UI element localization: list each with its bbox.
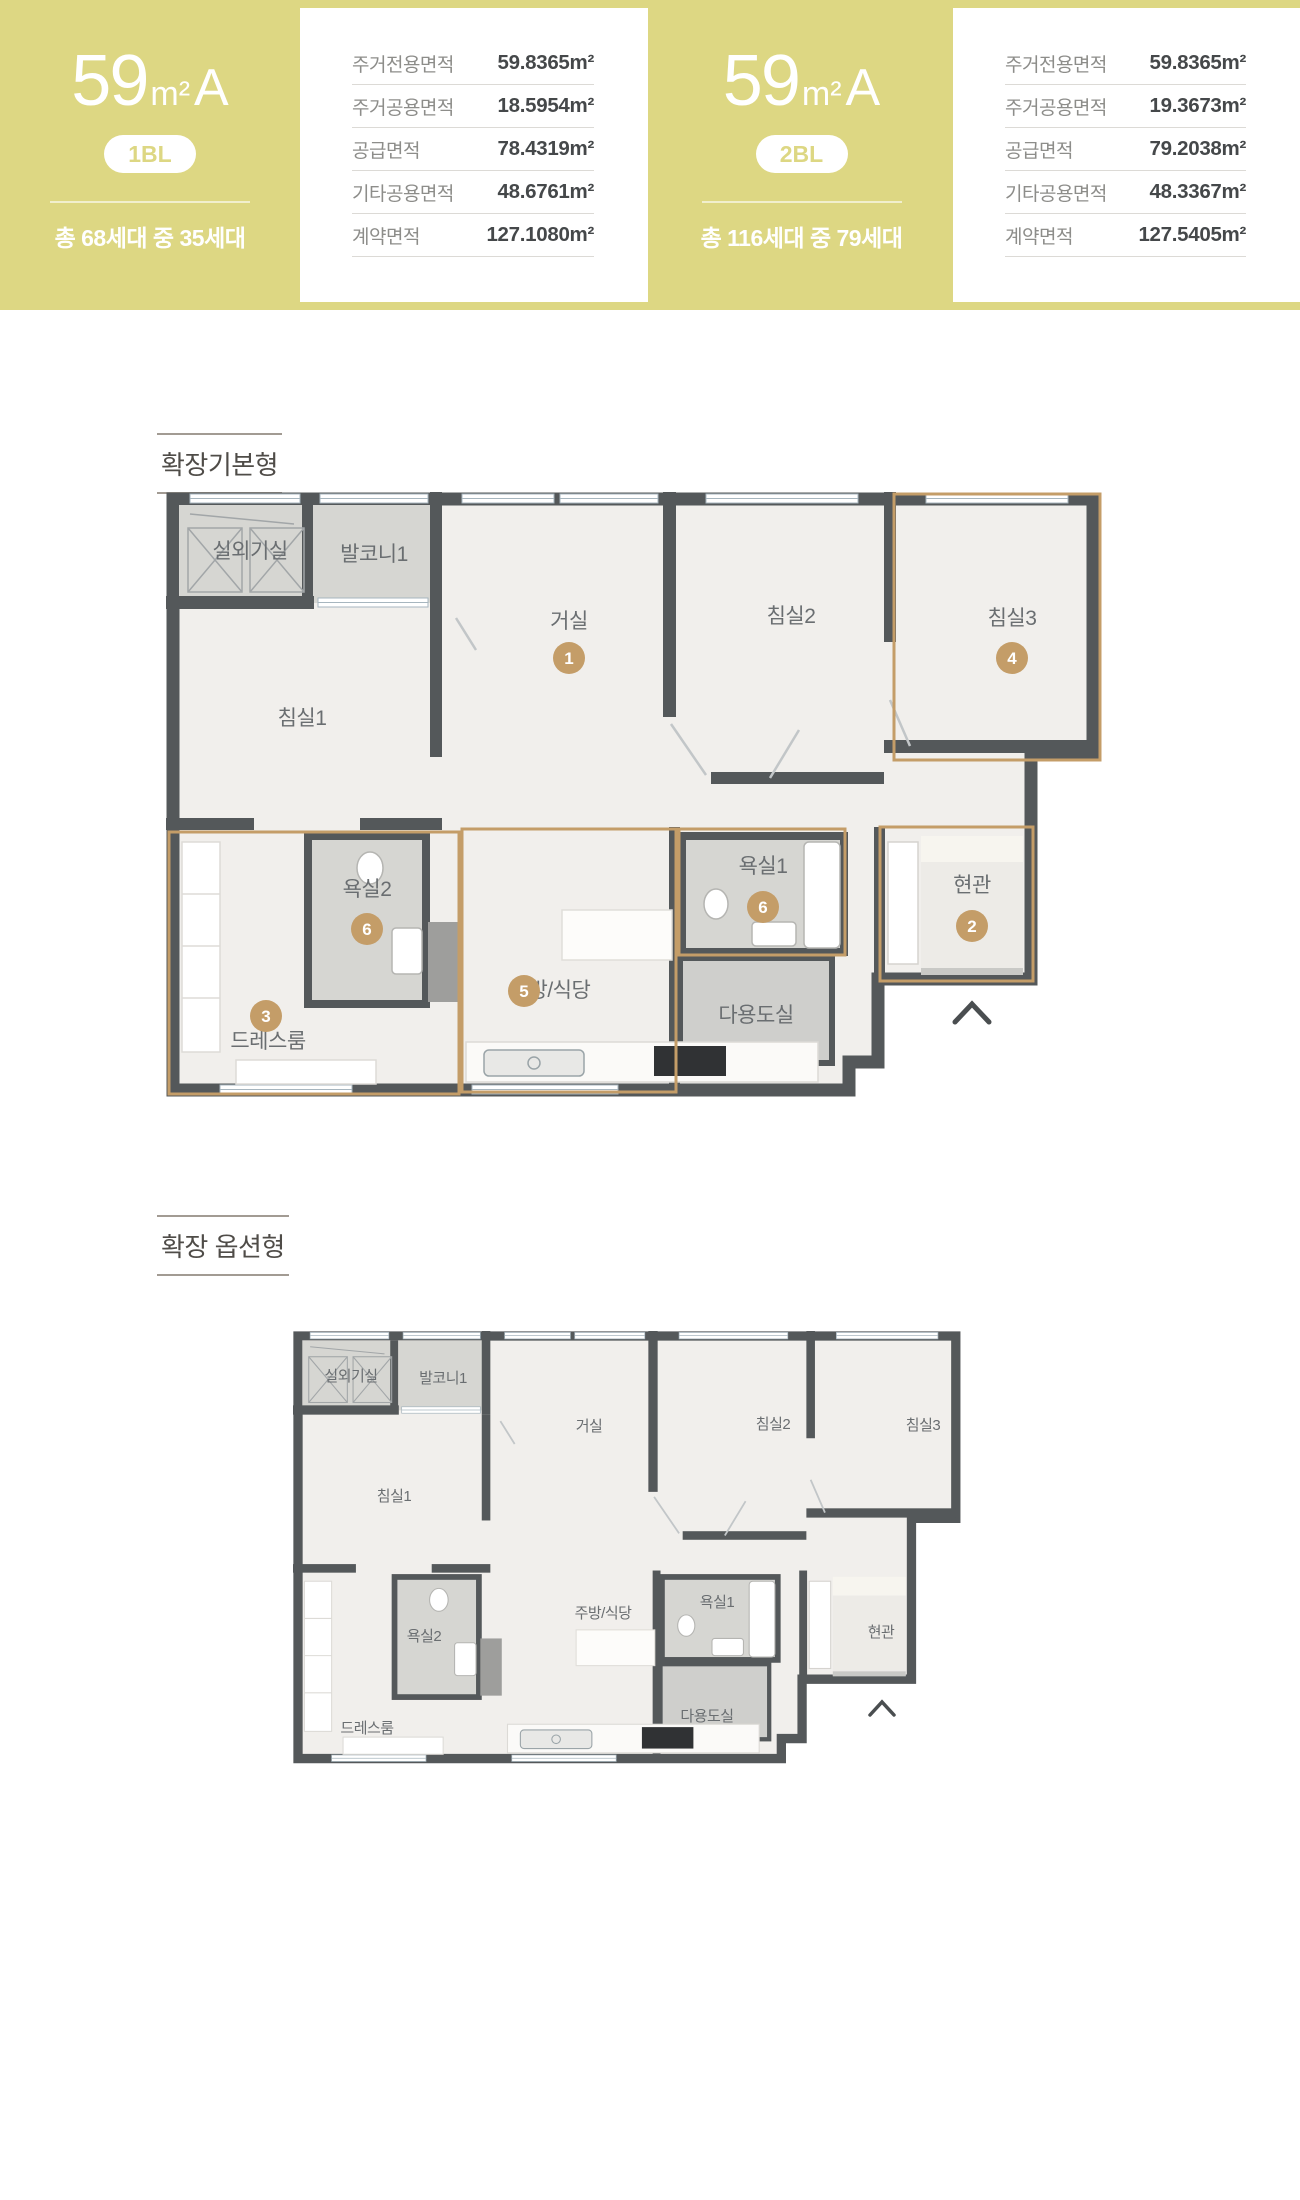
room-label-dress: 드레스룸 <box>230 1030 305 1053</box>
divider <box>702 201 902 203</box>
unit-area-title: 59 m² A <box>71 45 228 117</box>
room-label-living: 거실 <box>550 610 588 633</box>
spec-value: 79.2038m² <box>1150 137 1246 161</box>
unit-area-unit: m² <box>150 77 190 111</box>
spec-label: 주거공용면적 <box>1005 93 1107 120</box>
spec-value: 78.4319m² <box>498 137 594 161</box>
spec-row: 주거전용면적59.8365m² <box>352 42 594 85</box>
room-label-dress: 드레스룸 <box>340 1720 394 1737</box>
unit-area-number: 59 <box>723 45 799 117</box>
spec-value: 48.3367m² <box>1150 180 1246 204</box>
section-title-basic: 확장기본형 <box>157 433 282 494</box>
block-pill-1bl: 1BL <box>104 135 196 173</box>
spec-label: 계약면적 <box>352 222 420 249</box>
households-count: 총 116세대 중 79세대 <box>701 219 903 253</box>
unit-area-type: A <box>846 62 881 114</box>
room-label-kitchen: 주방/식당 <box>575 1605 633 1622</box>
spec-table-1bl: 주거전용면적59.8365m² 주거공용면적18.5954m² 공급면적78.4… <box>300 8 648 302</box>
room-label-bath2: 욕실2 <box>343 878 392 901</box>
badge-dress: 3 <box>250 1000 282 1032</box>
spec-label: 공급면적 <box>352 136 420 163</box>
spec-label: 주거전용면적 <box>352 50 454 77</box>
entry-direction-arrow <box>870 1702 894 1715</box>
spec-row: 기타공용면적48.6761m² <box>352 171 594 214</box>
hero-band: 59 m² A 1BL 총 68세대 중 35세대 주거전용면적59.8365m… <box>0 0 1300 310</box>
svg-text:2: 2 <box>967 917 976 936</box>
room-label-outdoor: 실외기실 <box>212 540 287 563</box>
svg-text:1: 1 <box>564 649 573 668</box>
svg-text:6: 6 <box>362 920 371 939</box>
badge-bath1: 6 <box>747 891 779 923</box>
divider <box>50 201 250 203</box>
spec-row: 주거공용면적19.3673m² <box>1005 85 1246 128</box>
badge-bed3: 4 <box>996 642 1028 674</box>
spec-label: 공급면적 <box>1005 136 1073 163</box>
spec-label: 주거공용면적 <box>352 93 454 120</box>
unit-card-1bl: 59 m² A 1BL 총 68세대 중 35세대 <box>0 0 300 310</box>
floor-plan-option: 실외기실 발코니1 침실1 거실 침실2 침실3 욕실2 드레스룸 주방/식당 … <box>293 1331 965 1766</box>
spec-label: 기타공용면적 <box>352 179 454 206</box>
badge-kitchen: 5 <box>508 975 540 1007</box>
room-label-bath1: 욕실1 <box>700 1594 735 1611</box>
room-label-entry: 현관 <box>868 1624 895 1641</box>
unit-area-number: 59 <box>71 45 147 117</box>
room-label-balcony: 발코니1 <box>340 543 408 566</box>
spec-label: 주거전용면적 <box>1005 50 1107 77</box>
unit-area-title: 59 m² A <box>723 45 880 117</box>
svg-text:5: 5 <box>519 982 528 1001</box>
room-label-outdoor: 실외기실 <box>324 1368 377 1385</box>
badge-bath2: 6 <box>351 913 383 945</box>
section-title-option: 확장 옵션형 <box>157 1215 289 1276</box>
svg-text:3: 3 <box>261 1007 270 1026</box>
spec-value: 59.8365m² <box>498 51 594 75</box>
spec-value: 19.3673m² <box>1150 94 1246 118</box>
spec-row: 공급면적78.4319m² <box>352 128 594 171</box>
spec-row: 계약면적127.5405m² <box>1005 214 1246 257</box>
room-label-entry: 현관 <box>953 874 991 897</box>
room-label-bed2: 침실2 <box>756 1416 791 1433</box>
room-label-bed3: 침실3 <box>906 1417 941 1434</box>
room-label-utility: 다용도실 <box>718 1004 793 1027</box>
spec-value: 48.6761m² <box>498 180 594 204</box>
spec-row: 주거전용면적59.8365m² <box>1005 42 1246 85</box>
unit-area-type: A <box>194 62 229 114</box>
room-label-utility: 다용도실 <box>680 1708 733 1725</box>
room-label-living: 거실 <box>576 1418 603 1435</box>
room-label-bed1: 침실1 <box>278 707 327 730</box>
unit-area-unit: m² <box>802 77 842 111</box>
spec-row: 공급면적79.2038m² <box>1005 128 1246 171</box>
block-pill-2bl: 2BL <box>756 135 848 173</box>
floor-plan-basic: 실외기실 발코니1 침실1 거실 침실2 침실3 욕실2 드레스룸 주방/식당 … <box>166 492 1106 1097</box>
room-label-bath2: 욕실2 <box>407 1628 442 1645</box>
unit-card-2bl: 59 m² A 2BL 총 116세대 중 79세대 <box>650 0 953 310</box>
room-label-bed3: 침실3 <box>988 607 1037 630</box>
svg-text:4: 4 <box>1007 649 1017 668</box>
entry-direction-arrow <box>955 1004 989 1022</box>
spec-label: 기타공용면적 <box>1005 179 1107 206</box>
spec-value: 127.5405m² <box>1138 223 1246 247</box>
households-count: 총 68세대 중 35세대 <box>55 219 246 253</box>
spec-label: 계약면적 <box>1005 222 1073 249</box>
spec-value: 59.8365m² <box>1150 51 1246 75</box>
badge-living: 1 <box>553 642 585 674</box>
spec-table-2bl: 주거전용면적59.8365m² 주거공용면적19.3673m² 공급면적79.2… <box>953 8 1300 302</box>
page: 59 m² A 1BL 총 68세대 중 35세대 주거전용면적59.8365m… <box>0 0 1300 2200</box>
room-label-balcony: 발코니1 <box>419 1370 467 1387</box>
room-label-bath1: 욕실1 <box>739 855 788 878</box>
room-label-bed2: 침실2 <box>767 605 816 628</box>
svg-text:6: 6 <box>758 898 767 917</box>
spec-row: 주거공용면적18.5954m² <box>352 85 594 128</box>
spec-row: 기타공용면적48.3367m² <box>1005 171 1246 214</box>
spec-value: 18.5954m² <box>498 94 594 118</box>
spec-value: 127.1080m² <box>486 223 594 247</box>
room-label-bed1: 침실1 <box>377 1488 412 1505</box>
badge-entry: 2 <box>956 910 988 942</box>
spec-row: 계약면적127.1080m² <box>352 214 594 257</box>
